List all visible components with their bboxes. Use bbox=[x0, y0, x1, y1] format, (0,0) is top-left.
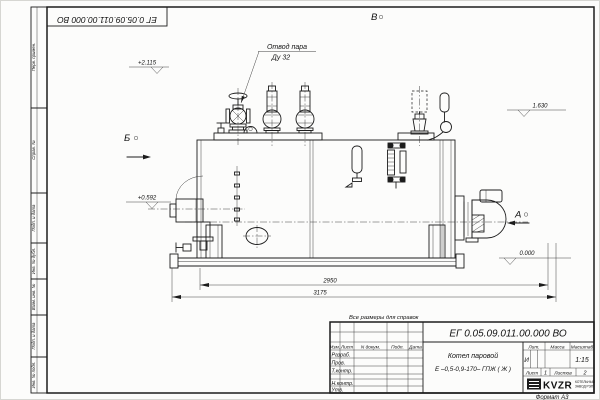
col-ndoc: N докум. bbox=[361, 345, 380, 351]
callout-line1: Отвод пара bbox=[267, 43, 307, 51]
row-nkontr: Н.контр. bbox=[332, 381, 354, 387]
elev-floor-value: 0.000 bbox=[519, 251, 535, 257]
row-utv: Утв. bbox=[332, 388, 344, 394]
margin-label-vzam-inv: Взам. инв. № bbox=[31, 283, 36, 310]
product-name: Котел паровой bbox=[448, 352, 498, 360]
company-sub2: ЗАВОД РЭП bbox=[575, 385, 594, 389]
company-sub1: КОТЕЛЬНЫЙ bbox=[575, 380, 596, 384]
reference-note: Все размеры для справок bbox=[349, 315, 419, 321]
col-podp: Подп. bbox=[391, 345, 404, 351]
title-designation: ЕГ 0.05.09.011.00.000 ВО bbox=[449, 329, 567, 340]
lit-value: И bbox=[524, 357, 529, 364]
mass-label: Масса bbox=[550, 345, 565, 351]
top-designation-text: ЕГ 0.05.09.011.00.000 ВО bbox=[57, 15, 157, 25]
paper-edge bbox=[1, 1, 600, 400]
col-izm: Изм. bbox=[330, 345, 340, 351]
margin-label-perv-primen: Перв. примен. bbox=[31, 43, 36, 72]
margin-label-podp-data-2: Подп. и дата bbox=[31, 322, 36, 350]
elev-right-value: 1.630 bbox=[532, 104, 548, 110]
col-data: Дата bbox=[408, 345, 422, 351]
scale-value: 1:15 bbox=[575, 357, 589, 364]
dim-2950-value: 2950 bbox=[322, 279, 337, 285]
company-name: KVZR bbox=[543, 381, 573, 392]
sheets-label: Листов bbox=[553, 371, 572, 377]
margin-label-inv-podl: Инв. № подл. bbox=[31, 362, 36, 389]
row-razrab: Разраб. bbox=[332, 353, 351, 359]
scale-label: Масштаб bbox=[571, 345, 594, 351]
sheet-value: 1 bbox=[544, 371, 547, 377]
col-list: Лист bbox=[340, 345, 353, 351]
dim-3175-value: 3175 bbox=[313, 291, 327, 297]
format-label: Формат А3 bbox=[536, 395, 569, 400]
margin-label-inv-dubl: Инв. № дубл. bbox=[31, 248, 36, 274]
elev-top-value: +2.115 bbox=[138, 61, 157, 67]
row-prov: Пров. bbox=[332, 361, 346, 367]
sheets-value: 2 bbox=[582, 371, 586, 377]
row-tkontr: Т.контр. bbox=[332, 369, 353, 375]
view-a-label: А bbox=[514, 210, 521, 221]
callout-line2: Ду 32 bbox=[271, 55, 290, 62]
elev-hatch-value: +0.592 bbox=[138, 196, 157, 202]
view-b-label: Б bbox=[124, 133, 130, 144]
sheet-label: Лист bbox=[525, 371, 538, 377]
margin-label-sprav-no: Справ. № bbox=[31, 140, 36, 160]
view-v-label: В bbox=[371, 12, 378, 23]
margin-label-podp-data-1: Подп. и дата bbox=[31, 204, 36, 232]
product-model: Е –0,5-0,9-170– ГПЖ ( Ж ) bbox=[435, 366, 511, 373]
lit-label: Лит. bbox=[527, 345, 539, 351]
drawing-sheet: Перв. примен. Справ. № Подп. и дата Инв.… bbox=[0, 0, 600, 400]
